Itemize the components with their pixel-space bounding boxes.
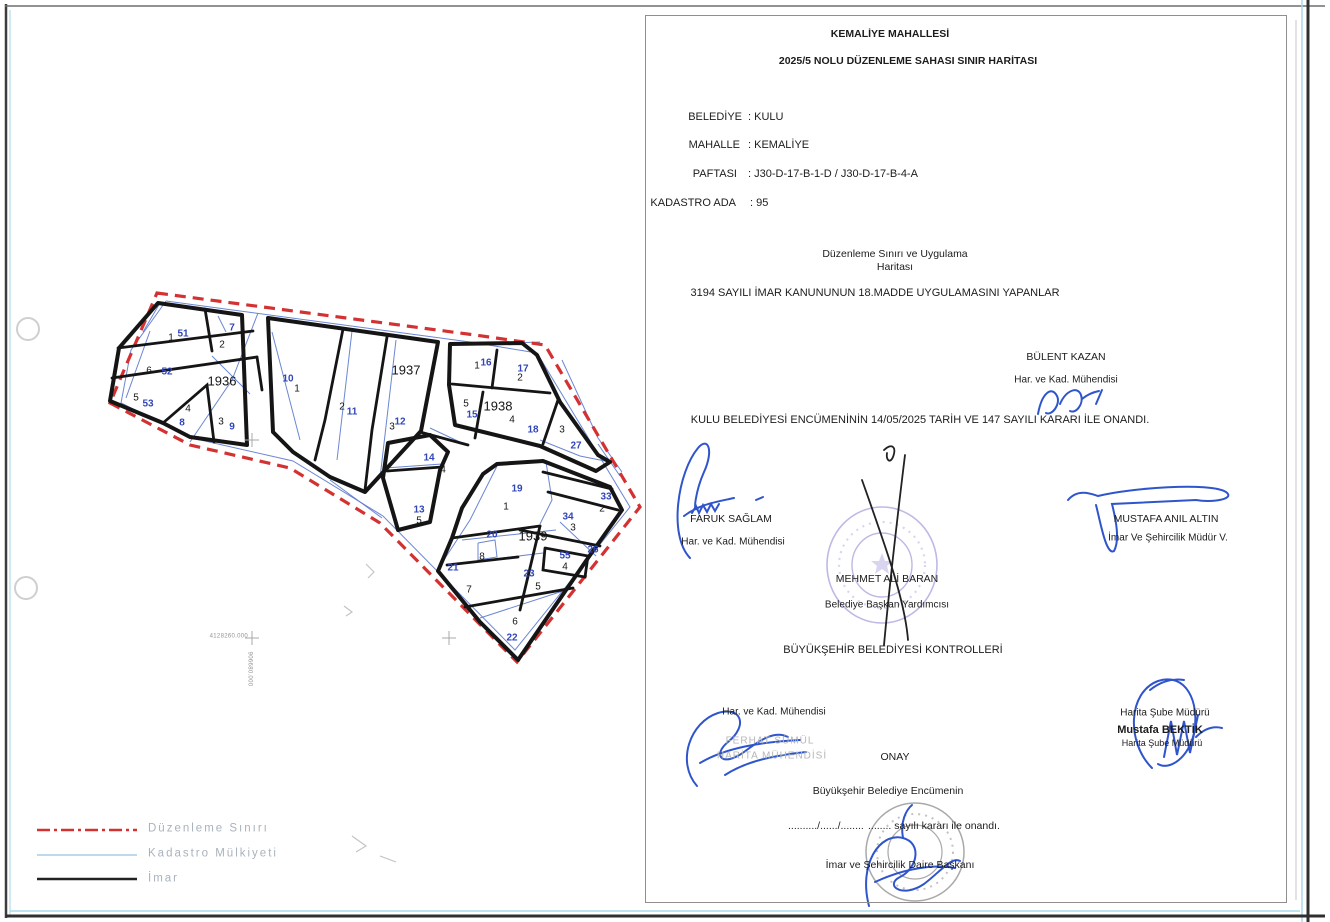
map-parcel-label: 4 [185,404,191,415]
onay-line2: ........ sayılı kararı ile onandı. [868,821,1000,833]
onay-signer: İmar ve Şehircilik Daire Başkanı [826,860,975,872]
bektik-name: Mustafa BEKTİK [1117,724,1203,736]
map-parcel-label: 15 [466,410,477,421]
map-parcel-label: 5 [463,399,469,410]
kadastro-line [218,316,226,332]
map-parcel-label: 53 [142,399,153,410]
pencil-mark [366,564,374,578]
onay-line1: Büyükşehir Belediye Encümenin [813,786,964,798]
imar-block-1938 [449,343,610,471]
legend-label-duzenleme: Düzenleme Sınırı [148,823,269,836]
field-mahalle-value: : KEMALİYE [748,139,809,151]
map-parcel-label: 4 [440,465,446,476]
map-parcel-label: 1 [294,384,300,395]
map-parcel-label: 55 [559,551,570,562]
subtitle-line2: Haritası [877,262,913,274]
map-parcel-label: 16 [480,358,491,369]
pencil-mark [380,856,396,862]
field-mahalle-label: MAHALLE [689,139,740,151]
bektik-title-above: Harita Şube Müdürü [1120,708,1210,719]
faruk-saglam-name: FARUK SAĞLAM [690,514,772,526]
grid-cross [442,631,456,645]
map-parcel-label: 23 [523,569,534,580]
map-parcel-label: 4 [562,562,568,573]
map-parcel-label: 27 [570,441,581,452]
field-paftasi-label: PAFTASI [693,168,737,180]
onay-dots: ........../....../........ [788,821,864,833]
map-parcel-label: 18 [527,425,538,436]
map-parcel-label: 1 [168,333,174,344]
cadastral-map [110,293,640,862]
hole-punch-bottom [14,576,38,600]
map-block-label: 1936 [208,374,237,389]
map-parcel-label: 11 [347,407,358,418]
map-parcel-label: 20 [486,530,497,541]
map-parcel-label: 7 [229,323,235,334]
mustafa-anil-altin-name: MUSTAFA ANIL ALTIN [1114,514,1219,526]
text-panel-border [645,15,1287,903]
bulent-kazan-name: BÜLENT KAZAN [1026,352,1105,364]
map-parcel-label: 8 [479,552,485,563]
imar-inner-line [452,384,550,393]
imar-inner-line [257,357,262,390]
legend-label-kadastro: Kadastro Mülkiyeti [148,848,278,861]
mehmet-ali-baran-name: MEHMET ALİ BARAN [836,574,939,586]
controllers-heading: BÜYÜKŞEHİR BELEDİYESİ KONTROLLERİ [783,644,1002,656]
coord-label-x: 4128260.000 [210,634,248,641]
map-parcel-label: 10 [282,374,293,385]
map-parcel-label: 52 [161,367,172,378]
map-parcel-label: 2 [339,402,345,413]
map-parcel-label: 34 [562,512,573,523]
pencil-mark [352,836,366,852]
map-parcel-label: 3 [570,523,576,534]
onay-heading: ONAY [881,752,910,764]
map-parcel-label: 2 [599,504,605,515]
map-parcel-label: 3 [218,417,224,428]
imar-block-1939 [438,461,622,660]
map-parcel-label: 5 [535,582,541,593]
map-parcel-label: 26 [587,545,598,556]
doc-title-line1: KEMALİYE MAHALLESİ [831,29,949,41]
imar-inner-line [543,400,558,444]
map-parcel-label: 6 [512,617,518,628]
faruk-saglam-title: Har. ve Kad. Mühendisi [681,537,784,548]
imar-inner-line [420,432,468,445]
map-parcel-label: 1 [474,361,480,372]
map-parcel-label: 4 [509,415,515,426]
map-block-label: 1938 [484,399,513,414]
pencil-mark [344,606,352,616]
field-kadastro-ada-label: KADASTRO ADA [650,197,736,209]
map-parcel-label: 2 [517,373,523,384]
mehmet-ali-baran-title: Belediye Başkan Yardımcısı [825,600,949,611]
field-kadastro-ada-value: : 95 [750,197,768,209]
map-parcel-label: 5 [133,393,139,404]
hole-punch-top [16,317,40,341]
map-parcel-label: 19 [511,484,522,495]
mustafa-anil-altin-title: İmar Ve Şehircilik Müdür V. [1108,533,1228,544]
map-parcel-label: 7 [466,585,472,596]
map-parcel-label: 51 [177,329,188,340]
map-block-label: 1939 [519,529,548,544]
map-parcel-label: 22 [506,633,517,644]
map-parcel-label: 33 [600,492,611,503]
map-parcel-label: 2 [219,340,225,351]
map-parcel-label: 3 [559,425,565,436]
field-belediye-value: : KULU [748,111,783,123]
subtitle-line1: Düzenleme Sınırı ve Uygulama [822,249,967,261]
map-parcel-label: 1 [503,502,509,513]
field-belediye-label: BELEDİYE [688,111,742,123]
bulent-kazan-title: Har. ve Kad. Mühendisi [1014,375,1117,386]
map-parcel-label: 12 [394,417,405,428]
imar-inner-line [205,309,212,351]
scanned-document-page: 1936193719381939151726525534839101211312… [0,0,1330,922]
bektik-title-below: Harita Şube Müdürü [1122,739,1203,749]
map-parcel-label: 14 [423,453,434,464]
ferhat-stamp-name: FERHAT SÜMÜL [726,736,815,747]
doc-title-line2: 2025/5 NOLU DÜZENLEME SAHASI SINIR HARİT… [779,56,1037,68]
map-parcel-label: 6 [146,366,152,377]
legend-label-imar: İmar [148,873,179,886]
approval-line: KULU BELEDİYESİ ENCÜMENİNİN 14/05/2025 T… [691,414,1150,426]
map-parcel-label: 8 [179,418,185,429]
coord-label-y: 906680.000 [246,652,253,687]
map-parcel-label: 9 [229,422,235,433]
field-paftasi-value: : J30-D-17-B-1-D / J30-D-17-B-4-A [748,168,918,180]
kadastro-line [330,480,382,518]
map-parcel-label: 5 [416,516,422,527]
imar-inner-line [492,350,497,388]
map-parcel-label: 13 [413,505,424,516]
ferhat-title: Har. ve Kad. Mühendisi [722,707,825,718]
map-parcel-label: 21 [447,563,458,574]
map-block-label: 1937 [392,363,421,378]
ferhat-stamp-title: HARİTA MÜHENDİSİ [717,751,827,762]
statement-line: 3194 SAYILI İMAR KANUNUNUN 18.MADDE UYGU… [690,287,1059,299]
legend-line-samples [37,830,137,879]
